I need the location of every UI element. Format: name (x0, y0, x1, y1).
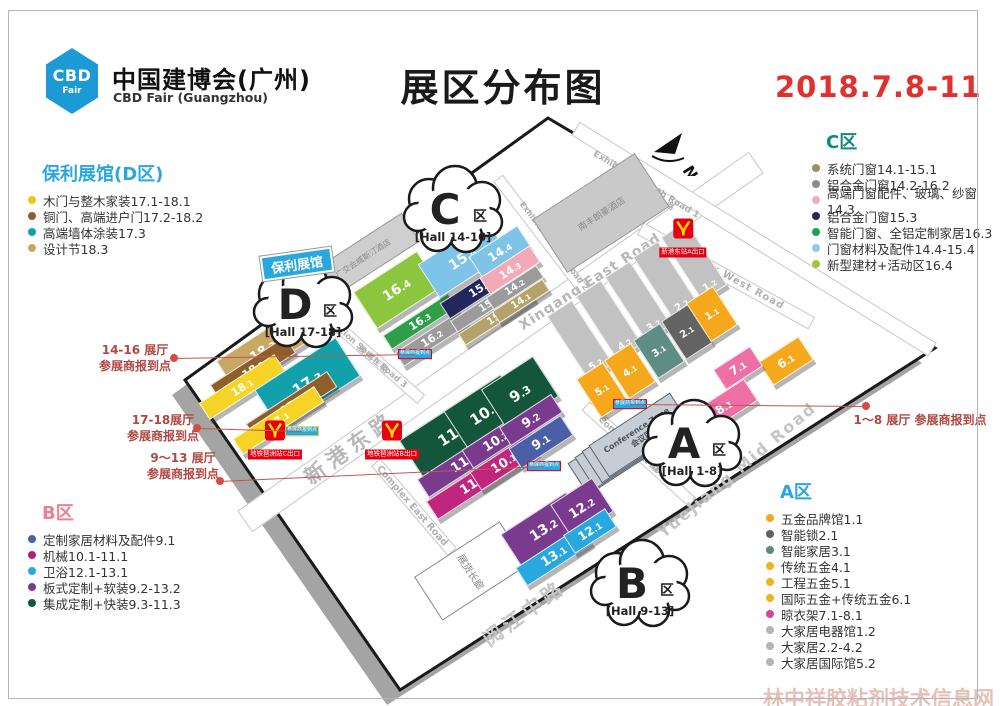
hall-label-3.1: 3.1 (650, 342, 668, 359)
legend-item-label: 大家居国际馆5.2 (781, 653, 876, 672)
building-label: 南丰朗豪酒店 (575, 193, 627, 233)
metro-exit-2: 地铁琶洲站B出口 (365, 421, 419, 460)
legend-dot (28, 583, 36, 591)
logo-main-text: CBD (53, 66, 92, 85)
svg-text:区: 区 (712, 443, 726, 459)
metro-exit-0: 新港东站A出口 (659, 219, 706, 258)
svg-text:[Hall 17-18]: [Hall 17-18] (265, 325, 342, 339)
legend-dot (766, 610, 774, 618)
svg-text:区: 区 (473, 209, 487, 225)
hall-label-16.4: 16.4 (380, 275, 414, 305)
zone-cloud-B: B 区 [Hall 9-13] (582, 535, 698, 637)
legend-dot (766, 514, 774, 522)
legend-dot (766, 658, 774, 666)
legend-d-zone: 保利展馆(D区) 木门与整木家装17.1-18.1铜门、高端进户门17.2-18… (28, 160, 258, 256)
legend-b-zone: B区 定制家居材料及配件9.1机械10.1-11.1卫浴12.1-13.1板式定… (28, 499, 248, 611)
hall-label-6.1: 6.1 (775, 350, 797, 371)
hall-label-5.1: 5.1 (593, 381, 611, 398)
legend-item-label: 设计节18.3 (43, 239, 108, 258)
building-label: 展货长廊 (454, 550, 488, 592)
legend-a-zone: A区 五金品牌馆1.1智能锁2.1智能家居3.1传统五金4.1工程五金5.1国际… (766, 478, 976, 670)
watermark: 林中祥胶粘剂技术信息网 (763, 683, 994, 706)
svg-text:区: 区 (323, 304, 337, 320)
legend-dot (812, 164, 820, 172)
event-date: 2018.7.8-11 (775, 70, 982, 104)
annotation-text-checkin-17-18: 17-18展厅参展商报到点 (113, 413, 213, 444)
hall-label-1.1: 1.1 (703, 305, 721, 322)
annotation-text-checkin-1-8: 1～8 展厅 参展商报到点 (845, 413, 995, 429)
legend-c-zone: C区 系统门窗14.1-15.1铝合金门窗14.2-16.2高端门窗配件、玻璃、… (812, 128, 997, 272)
page-title: 展区分布图 (398, 57, 608, 112)
svg-text:N: N (679, 162, 698, 176)
legend-item-label: 新型建材+活动区16.4 (827, 255, 953, 274)
legend-dot (812, 260, 820, 268)
legend-dot (28, 228, 36, 236)
svg-text:A: A (668, 419, 701, 468)
annotation-text-checkin-9-13: 9～13 展厅参展商报到点 (128, 451, 238, 482)
metro-icon (673, 219, 693, 239)
exhibition-map-page: 新港东路Xingang East RoadExhibition South Ro… (0, 0, 1000, 706)
legend-dot (812, 244, 820, 252)
legend-dot (766, 562, 774, 570)
legend-dot (766, 546, 774, 554)
legend-dot (28, 196, 36, 204)
legend-dot (766, 530, 774, 538)
legend-dot (766, 594, 774, 602)
legend-dot (28, 244, 36, 252)
hall-label-2.1: 2.1 (678, 323, 696, 340)
legend-item: 设计节18.3 (28, 240, 258, 256)
legend-dot (812, 228, 820, 236)
metro-exit-label: 地铁琶洲站B出口 (365, 450, 419, 460)
metro-exit-label: 地铁琶洲站C出口 (248, 450, 302, 460)
legend-dot (766, 578, 774, 586)
organizer-name-en: CBD Fair (Guangzhou) (113, 90, 268, 105)
legend-item-label: 集成定制+快装9.3-11.3 (43, 594, 181, 613)
legend-dot (766, 642, 774, 650)
zone-cloud-C: C 区 [Hall 14-16] (395, 161, 511, 263)
annotation-dot-checkin-1-8 (862, 402, 870, 410)
metro-icon (382, 421, 402, 441)
hall-label-4.1: 4.1 (621, 362, 639, 379)
legend-dot (812, 180, 820, 188)
legend-dot (28, 599, 36, 607)
legend-item: 新型建材+活动区16.4 (812, 256, 997, 272)
legend-dot (812, 212, 820, 220)
legend-b-title: B区 (42, 499, 248, 525)
metro-exit-label: 新港东站A出口 (659, 248, 706, 258)
hall-label-9.1: 9.1 (529, 431, 553, 454)
svg-text:[Hall 14-16]: [Hall 14-16] (415, 230, 492, 244)
legend-dot (28, 567, 36, 575)
legend-dot (812, 196, 820, 204)
svg-text:B: B (616, 559, 648, 608)
legend-item: 集成定制+快装9.3-11.3 (28, 595, 248, 611)
hall-label-9.3: 9.3 (506, 379, 534, 406)
hall-label-7.1: 7.1 (727, 357, 749, 378)
legend-item: 大家居国际馆5.2 (766, 654, 976, 670)
legend-a-title: A区 (780, 478, 976, 504)
legend-d-title: 保利展馆(D区) (42, 160, 258, 186)
svg-text:D: D (278, 280, 313, 329)
north-arrow-icon: N (646, 128, 698, 176)
svg-text:区: 区 (660, 583, 674, 599)
svg-text:[Hall 9-13]: [Hall 9-13] (606, 604, 675, 618)
svg-text:[Hall 1-8]: [Hall 1-8] (662, 464, 723, 478)
svg-text:C: C (430, 185, 461, 234)
zone-cloud-A: A 区 [Hall 1-8] (634, 395, 750, 497)
legend-dot (766, 626, 774, 634)
legend-dot (28, 551, 36, 559)
legend-dot (28, 535, 36, 543)
legend-dot (28, 212, 36, 220)
annotation-text-checkin-14-16: 14-16 展厅参展商报到点 (85, 343, 185, 374)
legend-c-title: C区 (826, 128, 997, 154)
logo-sub-text: Fair (62, 86, 81, 96)
